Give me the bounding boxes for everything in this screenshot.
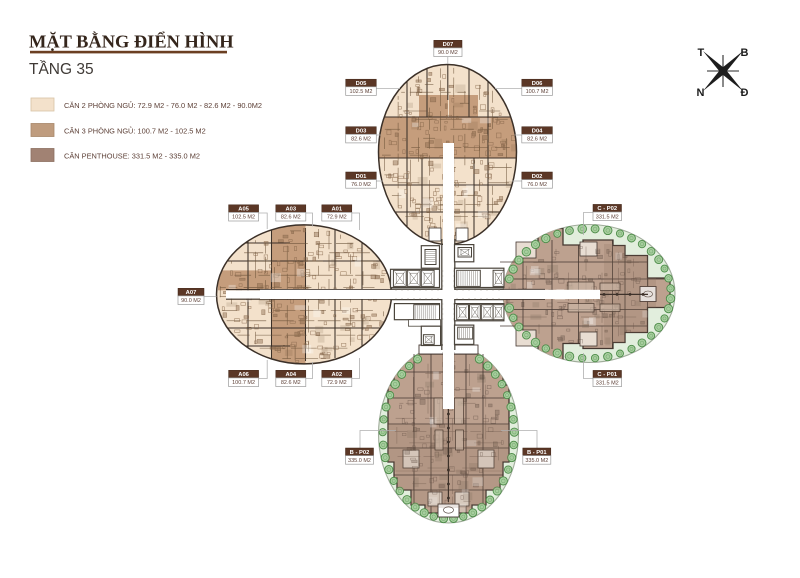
- svg-text:82.6 M2: 82.6 M2: [281, 215, 301, 221]
- svg-text:CĂN 2 PHÒNG NGỦ: 72.9 M2 - 76.: CĂN 2 PHÒNG NGỦ: 72.9 M2 - 76.0 M2 - 82.…: [64, 101, 262, 110]
- svg-text:90.0 M2: 90.0 M2: [438, 50, 458, 56]
- svg-text:102.5 M2: 102.5 M2: [350, 89, 373, 95]
- svg-text:B: B: [741, 47, 749, 59]
- svg-text:D02: D02: [532, 174, 543, 180]
- svg-text:335.0 M2: 335.0 M2: [525, 458, 548, 464]
- svg-text:A03: A03: [285, 207, 296, 213]
- svg-text:D04: D04: [532, 129, 543, 135]
- svg-text:76.0 M2: 76.0 M2: [527, 182, 547, 188]
- svg-text:82.6 M2: 82.6 M2: [527, 137, 547, 143]
- svg-text:72.9 M2: 72.9 M2: [327, 215, 347, 221]
- svg-text:90.0 M2: 90.0 M2: [181, 298, 201, 304]
- svg-text:A06: A06: [238, 372, 249, 378]
- svg-text:A02: A02: [331, 372, 342, 378]
- svg-text:335.0 M2: 335.0 M2: [348, 458, 371, 464]
- svg-text:72.9 M2: 72.9 M2: [327, 380, 347, 386]
- svg-text:D05: D05: [356, 81, 367, 87]
- svg-text:331.5 M2: 331.5 M2: [596, 214, 619, 220]
- svg-text:A07: A07: [186, 290, 197, 296]
- svg-text:82.6 M2: 82.6 M2: [281, 380, 301, 386]
- svg-text:A04: A04: [285, 372, 296, 378]
- svg-text:82.6 M2: 82.6 M2: [351, 137, 371, 143]
- svg-text:B - P01: B - P01: [527, 450, 547, 456]
- svg-text:102.5 M2: 102.5 M2: [232, 215, 255, 221]
- svg-text:CĂN 3 PHÒNG NGỦ: 100.7 M2 - 10: CĂN 3 PHÒNG NGỦ: 100.7 M2 - 102.5 M2: [64, 127, 206, 136]
- svg-text:D01: D01: [356, 174, 367, 180]
- svg-text:D03: D03: [356, 129, 367, 135]
- svg-text:D06: D06: [532, 81, 543, 87]
- svg-text:C - P01: C - P01: [597, 372, 617, 378]
- svg-text:A05: A05: [238, 207, 249, 213]
- svg-text:T: T: [698, 47, 705, 59]
- svg-text:Đ: Đ: [741, 87, 749, 99]
- svg-text:CĂN PENTHOUSE: 331.5 M2 - 335.: CĂN PENTHOUSE: 331.5 M2 - 335.0 M2: [64, 152, 200, 161]
- svg-text:TẦNG 35: TẦNG 35: [29, 61, 94, 78]
- svg-text:76.0 M2: 76.0 M2: [351, 182, 371, 188]
- svg-text:A01: A01: [331, 207, 342, 213]
- svg-text:MẶT BẰNG ĐIỂN HÌNH: MẶT BẰNG ĐIỂN HÌNH: [29, 31, 234, 52]
- svg-text:D07: D07: [443, 42, 454, 48]
- svg-text:331.5 M2: 331.5 M2: [596, 380, 619, 386]
- svg-text:B - P02: B - P02: [350, 450, 370, 456]
- svg-text:100.7 M2: 100.7 M2: [526, 89, 549, 95]
- svg-text:N: N: [697, 87, 705, 99]
- svg-text:100.7 M2: 100.7 M2: [232, 380, 255, 386]
- svg-text:C - P02: C - P02: [597, 206, 617, 212]
